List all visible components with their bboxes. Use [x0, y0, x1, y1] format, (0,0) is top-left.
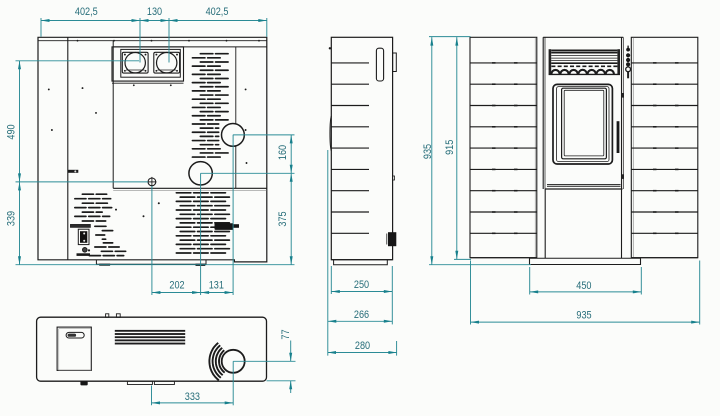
svg-text:130: 130 — [147, 6, 162, 18]
svg-text:333: 333 — [185, 391, 200, 403]
svg-text:131: 131 — [209, 280, 224, 292]
svg-text:490: 490 — [6, 124, 18, 139]
svg-text:375: 375 — [277, 211, 289, 226]
svg-text:450: 450 — [576, 280, 591, 292]
svg-text:77: 77 — [280, 329, 292, 339]
svg-text:160: 160 — [277, 145, 289, 160]
svg-text:250: 250 — [354, 279, 369, 291]
svg-text:402,5: 402,5 — [206, 6, 229, 18]
svg-text:266: 266 — [354, 309, 369, 321]
svg-text:915: 915 — [444, 139, 456, 154]
svg-text:935: 935 — [576, 310, 591, 322]
svg-text:339: 339 — [6, 211, 18, 226]
svg-text:202: 202 — [169, 280, 184, 292]
svg-text:935: 935 — [422, 144, 434, 159]
svg-text:402,5: 402,5 — [75, 6, 98, 18]
svg-text:280: 280 — [355, 340, 370, 352]
